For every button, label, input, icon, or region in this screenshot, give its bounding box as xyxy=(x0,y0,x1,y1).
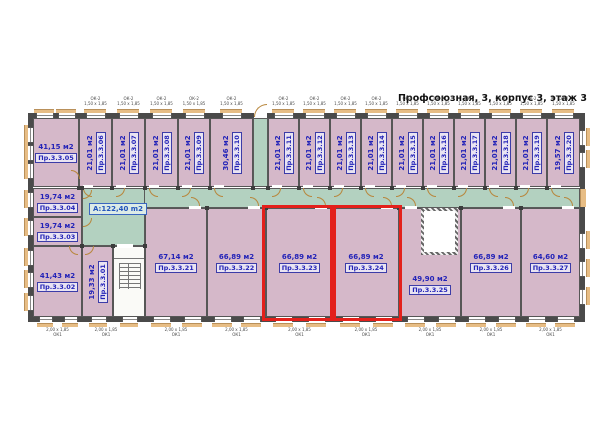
window xyxy=(557,317,575,322)
room-area: 21,01 м2 xyxy=(274,135,282,170)
room-number: Пр.3.3.21 xyxy=(155,263,197,273)
room-pr-3-3-22[interactable]: 66,89 м2Пр.3.3.22 xyxy=(207,208,266,317)
column xyxy=(359,186,363,190)
window-mark: 2,00 х 1,85ОК1 xyxy=(283,327,317,337)
stair-treads xyxy=(119,263,141,289)
room-number: Пр.3.3.07 xyxy=(129,132,139,174)
room-pr-3-3-12[interactable]: 21,01 м2Пр.3.3.12 xyxy=(299,118,330,187)
room-area: 49,90 м2 xyxy=(412,275,447,283)
room-area: 21,01 м2 xyxy=(336,135,344,170)
window xyxy=(407,317,425,322)
window xyxy=(28,250,33,266)
room-number: Пр.3.3.13 xyxy=(346,132,356,174)
column xyxy=(251,186,255,190)
corridor-area-label: A:122,40 m2 xyxy=(89,203,147,215)
window xyxy=(28,145,33,161)
window xyxy=(429,113,449,118)
door-opening xyxy=(248,206,260,209)
window xyxy=(398,113,418,118)
column xyxy=(80,244,84,248)
door-opening xyxy=(562,206,574,209)
room-pr-3-3-18[interactable]: 21,01 м2Пр.3.3.18 xyxy=(485,118,516,187)
highlight-room-3-3-24[interactable] xyxy=(330,205,402,321)
column xyxy=(545,186,549,190)
window-mark: ОК-21,50 х 1,85 xyxy=(453,96,487,106)
window xyxy=(367,113,387,118)
room-number: Пр.3.3.18 xyxy=(501,132,511,174)
window-mark: ОК-21,50 х 1,85 xyxy=(360,96,394,106)
window xyxy=(554,113,574,118)
window-mark: 2,00 х 1,85ОК1 xyxy=(413,327,447,337)
room-pr-3-3-03[interactable]: 19,74 м2Пр.3.3.03 xyxy=(33,217,82,246)
window xyxy=(438,317,456,322)
column xyxy=(110,186,114,190)
window xyxy=(468,317,486,322)
room-number: Пр.3.3.10 xyxy=(232,132,242,174)
room-pr-3-3-01[interactable]: 19,33 м2Пр.3.3.01 xyxy=(82,246,113,317)
window xyxy=(580,130,585,146)
window-sill xyxy=(586,287,590,305)
elevator-shaft xyxy=(421,208,458,255)
room-pr-3-3-26[interactable]: 66,89 м2Пр.3.3.26 xyxy=(461,208,521,317)
room-pr-3-3-16[interactable]: 21,01 м2Пр.3.3.16 xyxy=(423,118,454,187)
window xyxy=(91,317,107,322)
window-mark: ОК-21,50 х 1,85 xyxy=(79,96,113,106)
room-number: Пр.3.3.19 xyxy=(532,132,542,174)
window xyxy=(122,317,138,322)
room-area: 19,74 м2 xyxy=(40,193,75,201)
column xyxy=(77,186,81,190)
window xyxy=(28,127,33,143)
window-mark: 2,00 х 1,85ОК1 xyxy=(220,327,254,337)
window-mark: 2,00 х 1,85ОК1 xyxy=(159,327,193,337)
room-area: 21,01 м2 xyxy=(184,135,192,170)
room-number: Пр.3.3.26 xyxy=(470,263,512,273)
room-number: Пр.3.3.09 xyxy=(194,132,204,174)
room-area: 66,89 м2 xyxy=(473,253,508,261)
room-pr-3-3-04[interactable]: 19,74 м2Пр.3.3.04 xyxy=(33,188,82,217)
room-number: Пр.3.3.11 xyxy=(284,132,294,174)
room-pr-3-3-19[interactable]: 21,01 м2Пр.3.3.19 xyxy=(516,118,547,187)
window-mark: ОК-21,50 х 1,85 xyxy=(112,96,146,106)
room-area: 30,46 м2 xyxy=(222,135,230,170)
room-area: 67,14 м2 xyxy=(158,253,193,261)
window xyxy=(336,113,356,118)
window-mark: ОК-21,50 х 1,85 xyxy=(215,96,249,106)
room-number: Пр.3.3.03 xyxy=(37,232,79,242)
room-number: Пр.3.3.14 xyxy=(377,132,387,174)
room-area: 21,01 м2 xyxy=(398,135,406,170)
door-arc xyxy=(254,104,267,117)
window xyxy=(39,317,53,322)
column xyxy=(143,186,147,190)
room-pr-3-3-08[interactable]: 21,01 м2Пр.3.3.08 xyxy=(145,118,178,187)
entrance-vestibule xyxy=(253,118,268,187)
room-number: Пр.3.3.16 xyxy=(439,132,449,174)
room-pr-3-3-02[interactable]: 41,43 м2Пр.3.3.02 xyxy=(33,246,82,317)
room-pr-3-3-06[interactable]: 21,01 м2Пр.3.3.06 xyxy=(79,118,112,187)
window xyxy=(58,113,76,118)
highlight-room-3-3-23[interactable] xyxy=(262,205,336,321)
window xyxy=(28,220,33,236)
room-pr-3-3-10[interactable]: 30,46 м2Пр.3.3.10 xyxy=(210,118,253,187)
column xyxy=(390,186,394,190)
room-area: 21,01 м2 xyxy=(119,135,127,170)
window xyxy=(86,113,106,118)
room-number: Пр.3.3.12 xyxy=(315,132,325,174)
room-area: 21,01 м2 xyxy=(367,135,375,170)
room-area: 21,01 м2 xyxy=(305,135,313,170)
window xyxy=(243,317,261,322)
room-area: 21,01 м2 xyxy=(152,135,160,170)
window-mark: ОК-21,50 х 1,85 xyxy=(298,96,332,106)
window xyxy=(222,113,242,118)
building-outline: A:122,40 m2 41,15 м2Пр.3.3.05 21,01 м2Пр… xyxy=(28,113,585,322)
room-pr-3-3-27[interactable]: 64,60 м2Пр.3.3.27 xyxy=(521,208,580,317)
column xyxy=(297,186,301,190)
window xyxy=(119,113,139,118)
room-number: Пр.3.3.17 xyxy=(470,132,480,174)
window-mark: 2,00 х 1,85ОК1 xyxy=(349,327,383,337)
room-number: Пр.3.3.05 xyxy=(35,153,77,163)
room-number: Пр.3.3.01 xyxy=(98,261,108,303)
door-opening xyxy=(503,206,515,209)
window-mark: ОК-21,50 х 1,85 xyxy=(547,96,581,106)
window xyxy=(498,317,516,322)
window xyxy=(460,113,480,118)
window-mark: ОК-21,50 х 1,85 xyxy=(267,96,301,106)
room-pr-3-3-09[interactable]: 21,01 м2Пр.3.3.09 xyxy=(178,118,210,187)
window xyxy=(28,272,33,288)
room-area: 21,01 м2 xyxy=(86,135,94,170)
window-mark: ОК-21,50 х 1,85 xyxy=(177,96,211,106)
window-mark: ОК-21,50 х 1,85 xyxy=(329,96,363,106)
room-area: 21,01 м2 xyxy=(491,135,499,170)
window-mark: ОК-21,50 х 1,85 xyxy=(145,96,179,106)
room-area: 21,01 м2 xyxy=(429,135,437,170)
window xyxy=(36,113,54,118)
window xyxy=(28,295,33,311)
window xyxy=(528,317,546,322)
room-pr-3-3-11[interactable]: 21,01 м2Пр.3.3.11 xyxy=(268,118,299,187)
room-area: 66,89 м2 xyxy=(219,253,254,261)
room-area: 64,60 м2 xyxy=(533,253,568,261)
room-number: Пр.3.3.22 xyxy=(216,263,258,273)
room-area: 19,57 м2 xyxy=(554,135,562,170)
room-pr-3-3-21[interactable]: 67,14 м2Пр.3.3.21 xyxy=(145,208,207,317)
window-mark: ОК-21,50 х 1,85 xyxy=(515,96,549,106)
column xyxy=(208,186,212,190)
stair-center-line xyxy=(128,263,129,289)
column xyxy=(519,206,523,210)
window xyxy=(522,113,542,118)
door-opening xyxy=(405,206,417,209)
window xyxy=(184,317,202,322)
room-area: 21,01 м2 xyxy=(460,135,468,170)
window xyxy=(305,113,325,118)
window-mark: 2,00 х 1,85ОК1 xyxy=(534,327,568,337)
window-mark: 2,00 х 1,85ОК1 xyxy=(89,327,123,337)
window xyxy=(580,152,585,168)
window-mark: ОК-21,50 х 1,85 xyxy=(391,96,425,106)
column xyxy=(111,244,115,248)
corridor-end-door xyxy=(580,189,586,207)
door-opening xyxy=(117,244,133,248)
window xyxy=(491,113,511,118)
room-pr-3-3-15[interactable]: 21,01 м2Пр.3.3.15 xyxy=(392,118,423,187)
column xyxy=(421,186,425,190)
window xyxy=(580,261,585,277)
window xyxy=(153,317,171,322)
room-number: Пр.3.3.27 xyxy=(530,263,572,273)
room-number: Пр.3.3.25 xyxy=(409,285,451,295)
room-number: Пр.3.3.08 xyxy=(162,132,172,174)
door-opening xyxy=(189,206,201,209)
column xyxy=(483,186,487,190)
column xyxy=(328,186,332,190)
room-area: 19,33 м2 xyxy=(88,264,96,299)
column xyxy=(266,186,270,190)
floor-plan-page: Профсоюзная, 3, корпус 3, этаж 3 A:122,4… xyxy=(0,0,600,425)
column xyxy=(205,206,209,210)
window xyxy=(152,113,172,118)
window xyxy=(580,233,585,249)
window-sill xyxy=(586,150,590,168)
window xyxy=(64,317,78,322)
room-area: 19,74 м2 xyxy=(40,222,75,230)
window-sill xyxy=(586,128,590,146)
window-sill xyxy=(586,231,590,249)
column xyxy=(452,186,456,190)
stair-landing xyxy=(114,258,144,259)
window xyxy=(28,163,33,179)
room-number: Пр.3.3.04 xyxy=(37,203,79,213)
window-mark: 2,00 х 1,85ОК1 xyxy=(41,327,75,337)
window-mark: ОК-21,50 х 1,85 xyxy=(484,96,518,106)
window-sill xyxy=(586,259,590,277)
column xyxy=(143,244,147,248)
column xyxy=(459,206,463,210)
window xyxy=(185,113,205,118)
room-number: Пр.3.3.06 xyxy=(96,132,106,174)
column xyxy=(176,186,180,190)
room-number: Пр.3.3.20 xyxy=(564,132,574,174)
window xyxy=(580,289,585,305)
room-pr-3-3-20[interactable]: 19,57 м2Пр.3.3.20 xyxy=(547,118,580,187)
window xyxy=(214,317,232,322)
window xyxy=(28,192,33,208)
window-mark: ОК-21,50 х 1,85 xyxy=(422,96,456,106)
room-area: 41,43 м2 xyxy=(40,272,75,280)
room-pr-3-3-07[interactable]: 21,01 м2Пр.3.3.07 xyxy=(112,118,145,187)
room-area: 41,15 м2 xyxy=(38,143,73,151)
column xyxy=(514,186,518,190)
room-pr-3-3-17[interactable]: 21,01 м2Пр.3.3.17 xyxy=(454,118,485,187)
room-area: 21,01 м2 xyxy=(522,135,530,170)
window-mark: 2,00 х 1,85ОК1 xyxy=(474,327,508,337)
window xyxy=(274,113,294,118)
room-number: Пр.3.3.02 xyxy=(37,282,79,292)
room-pr-3-3-13[interactable]: 21,01 м2Пр.3.3.13 xyxy=(330,118,361,187)
room-number: Пр.3.3.15 xyxy=(408,132,418,174)
room-pr-3-3-14[interactable]: 21,01 м2Пр.3.3.14 xyxy=(361,118,392,187)
